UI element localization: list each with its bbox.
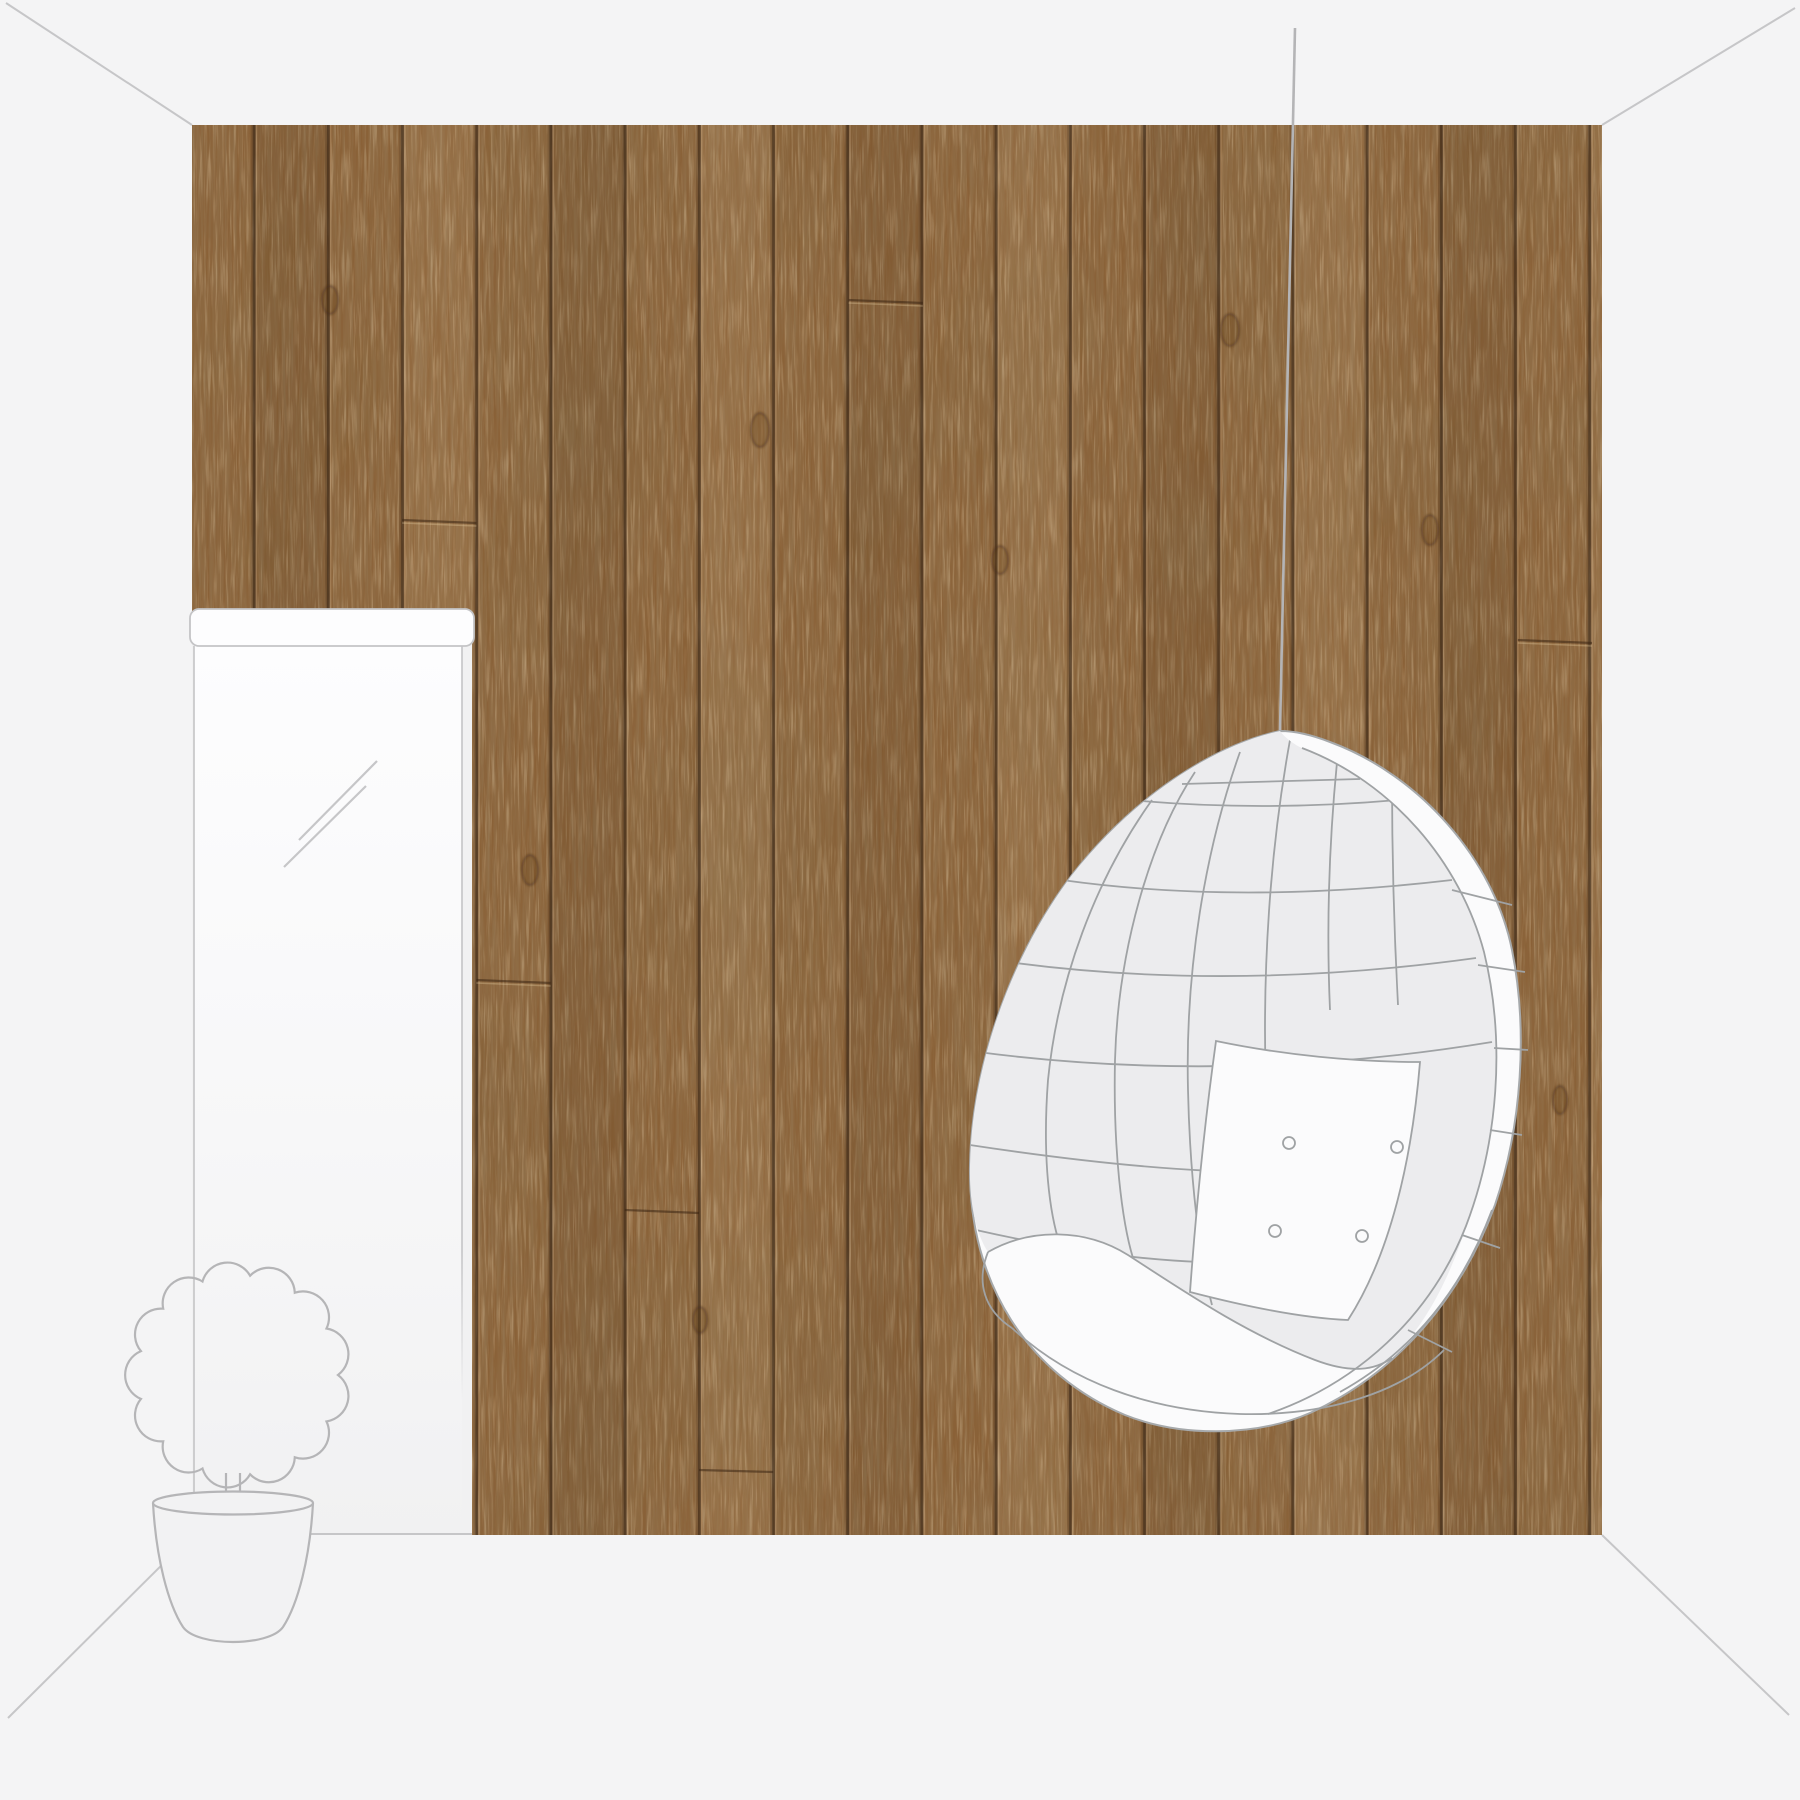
- window-frame-left: [193, 646, 195, 1510]
- window-valance: [190, 609, 474, 646]
- tufting-button: [1269, 1225, 1281, 1237]
- tufting-button: [1391, 1141, 1403, 1153]
- window-frame-right: [461, 646, 463, 1400]
- room-mockup: [0, 0, 1800, 1800]
- tufting-button: [1283, 1137, 1295, 1149]
- tufting-button: [1356, 1230, 1368, 1242]
- pot-rim: [153, 1492, 313, 1515]
- window: [190, 609, 474, 1535]
- window-glass: [194, 646, 462, 1535]
